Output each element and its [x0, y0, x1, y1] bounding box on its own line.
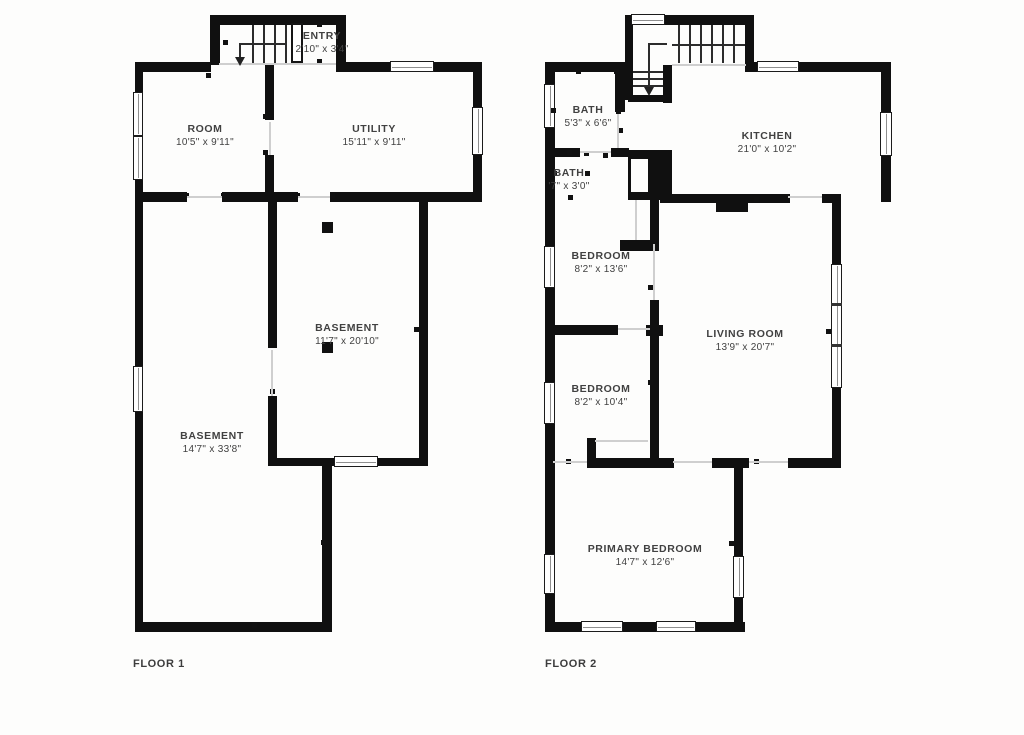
wall: [734, 462, 743, 560]
room-label-bedroom-upper: BEDROOM 8'2" x 13'6": [571, 250, 630, 276]
wall: [265, 155, 274, 202]
room-label-bath-lower: BATH '7" x 3'0": [548, 167, 589, 193]
window-glass-line: [759, 67, 797, 68]
room-name: PRIMARY BEDROOM: [588, 543, 703, 556]
wall: [322, 458, 332, 632]
opening-line: [749, 461, 788, 463]
door-tick: [826, 329, 831, 334]
door-tick: [567, 150, 572, 155]
window: [656, 621, 696, 632]
room-name: BASEMENT: [315, 322, 379, 335]
opening-line: [553, 461, 587, 463]
room-dims: 5'3" x 6'6": [564, 117, 611, 130]
wall: [615, 72, 625, 112]
window-mullion: [831, 303, 842, 306]
door-tick: [206, 73, 211, 78]
room-name: BEDROOM: [571, 383, 630, 396]
room-label-kitchen: KITCHEN 21'0" x 10'2": [738, 130, 797, 156]
room-label-utility: UTILITY 15'11" x 9'11": [342, 123, 405, 149]
chimney-cavity: [631, 159, 648, 192]
window-glass-line: [550, 556, 551, 592]
opening-line: [673, 461, 712, 463]
room-name: KITCHEN: [738, 130, 797, 143]
wall: [210, 15, 346, 25]
column-post: [322, 222, 333, 233]
door-tick: [270, 341, 275, 346]
window: [831, 264, 842, 388]
room-dims: '7" x 3'0": [548, 180, 589, 193]
room-name: LIVING ROOM: [706, 328, 783, 341]
stair-tread: [672, 44, 745, 46]
stair-tread: [240, 43, 287, 45]
room-name: ENTRY: [296, 30, 349, 43]
opening-line: [788, 196, 822, 198]
wall: [611, 148, 629, 157]
wall: [788, 458, 841, 468]
opening-line: [617, 114, 619, 148]
door-tick: [754, 197, 759, 202]
window: [133, 92, 143, 136]
room-dims: 21'0" x 10'2": [738, 143, 797, 156]
stair-arrow: [644, 87, 654, 96]
wall: [660, 194, 790, 203]
window: [544, 382, 555, 424]
wall: [268, 396, 277, 466]
window-glass-line: [837, 266, 838, 386]
window-glass-line: [550, 384, 551, 422]
room-name: BATH: [548, 167, 589, 180]
opening-line: [187, 196, 222, 198]
window-mullion: [831, 344, 842, 347]
room-label-bedroom-lower: BEDROOM 8'2" x 10'4": [571, 383, 630, 409]
wall: [587, 458, 674, 468]
door-tick: [551, 108, 556, 113]
room-dims: 10'5" x 9'11": [176, 136, 234, 149]
opening-line: [269, 122, 271, 155]
window: [581, 621, 623, 632]
window: [544, 84, 555, 128]
wall: [330, 192, 482, 202]
window: [133, 136, 143, 180]
wall: [135, 622, 332, 632]
window-glass-line: [550, 86, 551, 126]
door-tick: [729, 541, 734, 546]
opening-line: [653, 244, 655, 300]
room-dims: 11'7" x 20'10": [315, 335, 379, 348]
window-glass-line: [633, 20, 663, 21]
wall: [545, 622, 745, 632]
door-tick: [263, 114, 268, 119]
stair-arrow: [235, 57, 245, 66]
room-dims: 14'7" x 33'8": [180, 443, 244, 456]
room-name: BATH: [564, 104, 611, 117]
wall: [832, 387, 841, 460]
window-glass-line: [583, 627, 621, 628]
door-tick: [263, 150, 268, 155]
door-tick: [576, 69, 581, 74]
room-name: BASEMENT: [180, 430, 244, 443]
door-tick: [330, 193, 335, 198]
window: [544, 246, 555, 288]
window: [544, 554, 555, 594]
wall: [135, 192, 187, 202]
wall: [545, 325, 618, 335]
wall: [646, 325, 663, 336]
wall: [716, 203, 748, 212]
window: [880, 112, 892, 156]
wall: [222, 192, 298, 202]
room-label-room: ROOM 10'5" x 9'11": [176, 123, 234, 149]
room-label-basement-inner: BASEMENT 11'7" x 20'10": [315, 322, 379, 348]
room-dims: 13'9" x 20'7": [706, 341, 783, 354]
room-name: UTILITY: [342, 123, 405, 136]
door-tick: [321, 540, 326, 545]
window: [631, 14, 665, 25]
door-tick: [614, 69, 619, 74]
window-glass-line: [138, 138, 139, 178]
room-label-basement-main: BASEMENT 14'7" x 33'8": [180, 430, 244, 456]
window-glass-line: [886, 114, 887, 154]
stair-tread: [649, 43, 667, 45]
room-label-primary-bedroom: PRIMARY BEDROOM 14'7" x 12'6": [588, 543, 703, 569]
window: [133, 366, 143, 412]
door-tick: [252, 623, 257, 628]
room-dims: 8'2" x 13'6": [571, 263, 630, 276]
window-glass-line: [392, 67, 432, 68]
window-glass-line: [739, 558, 740, 596]
window-glass-line: [138, 368, 139, 410]
door-tick: [317, 22, 322, 27]
opening-line: [618, 328, 650, 330]
room-dims: 14'7" x 12'6": [588, 556, 703, 569]
opening-line: [595, 440, 648, 442]
door-tick: [136, 540, 141, 545]
wall: [625, 15, 633, 100]
room-label-living-room: LIVING ROOM 13'9" x 20'7": [706, 328, 783, 354]
room-name: ROOM: [176, 123, 234, 136]
floor2-label: FLOOR 2: [545, 658, 597, 670]
wall: [265, 65, 274, 120]
door-tick: [414, 327, 419, 332]
opening-line: [298, 196, 330, 198]
room-name: BEDROOM: [571, 250, 630, 263]
window: [334, 456, 378, 467]
opening-line: [635, 200, 637, 240]
opening-line: [580, 151, 611, 153]
window-glass-line: [478, 109, 479, 153]
window: [733, 556, 744, 598]
wall: [419, 192, 428, 466]
opening-line: [672, 64, 746, 66]
floorplan-canvas: ENTRY 2'10" x 3'4" ROOM 10'5" x 9'11" UT…: [0, 0, 1024, 735]
floor1-label: FLOOR 1: [133, 658, 185, 670]
window: [472, 107, 483, 155]
window-glass-line: [658, 627, 694, 628]
wall: [628, 95, 672, 102]
window: [390, 61, 434, 72]
door-tick: [568, 195, 573, 200]
wall: [135, 62, 211, 72]
room-dims: 15'11" x 9'11": [342, 136, 405, 149]
wall: [650, 200, 659, 242]
room-label-bath-upper: BATH 5'3" x 6'6": [564, 104, 611, 130]
stair-tread: [648, 43, 650, 87]
wall: [268, 200, 277, 348]
window-glass-line: [336, 462, 376, 463]
window-glass-line: [138, 94, 139, 134]
window-glass-line: [550, 248, 551, 286]
door-tick: [223, 40, 228, 45]
door-tick: [603, 153, 608, 158]
window: [757, 61, 799, 72]
room-dims: 8'2" x 10'4": [571, 396, 630, 409]
room-label-entry: ENTRY 2'10" x 3'4": [296, 30, 349, 56]
door-tick: [648, 380, 653, 385]
room-dims: 2'10" x 3'4": [296, 43, 349, 56]
wall: [832, 194, 841, 266]
wall: [712, 458, 749, 468]
opening-line: [271, 350, 273, 396]
stair-tread: [239, 43, 241, 57]
